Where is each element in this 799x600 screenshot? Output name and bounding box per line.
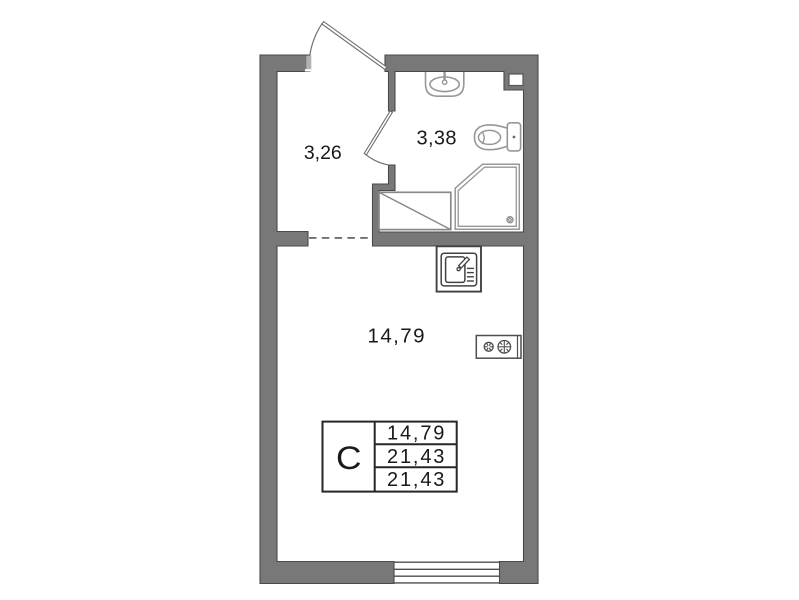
svg-text:3,26: 3,26 [304,142,342,164]
svg-text:14,79: 14,79 [387,423,444,445]
svg-text:21,43: 21,43 [387,469,444,491]
svg-text:С: С [336,440,362,476]
svg-text:14,79: 14,79 [368,324,425,347]
svg-text:3,38: 3,38 [417,127,457,149]
svg-text:21,43: 21,43 [387,446,444,468]
